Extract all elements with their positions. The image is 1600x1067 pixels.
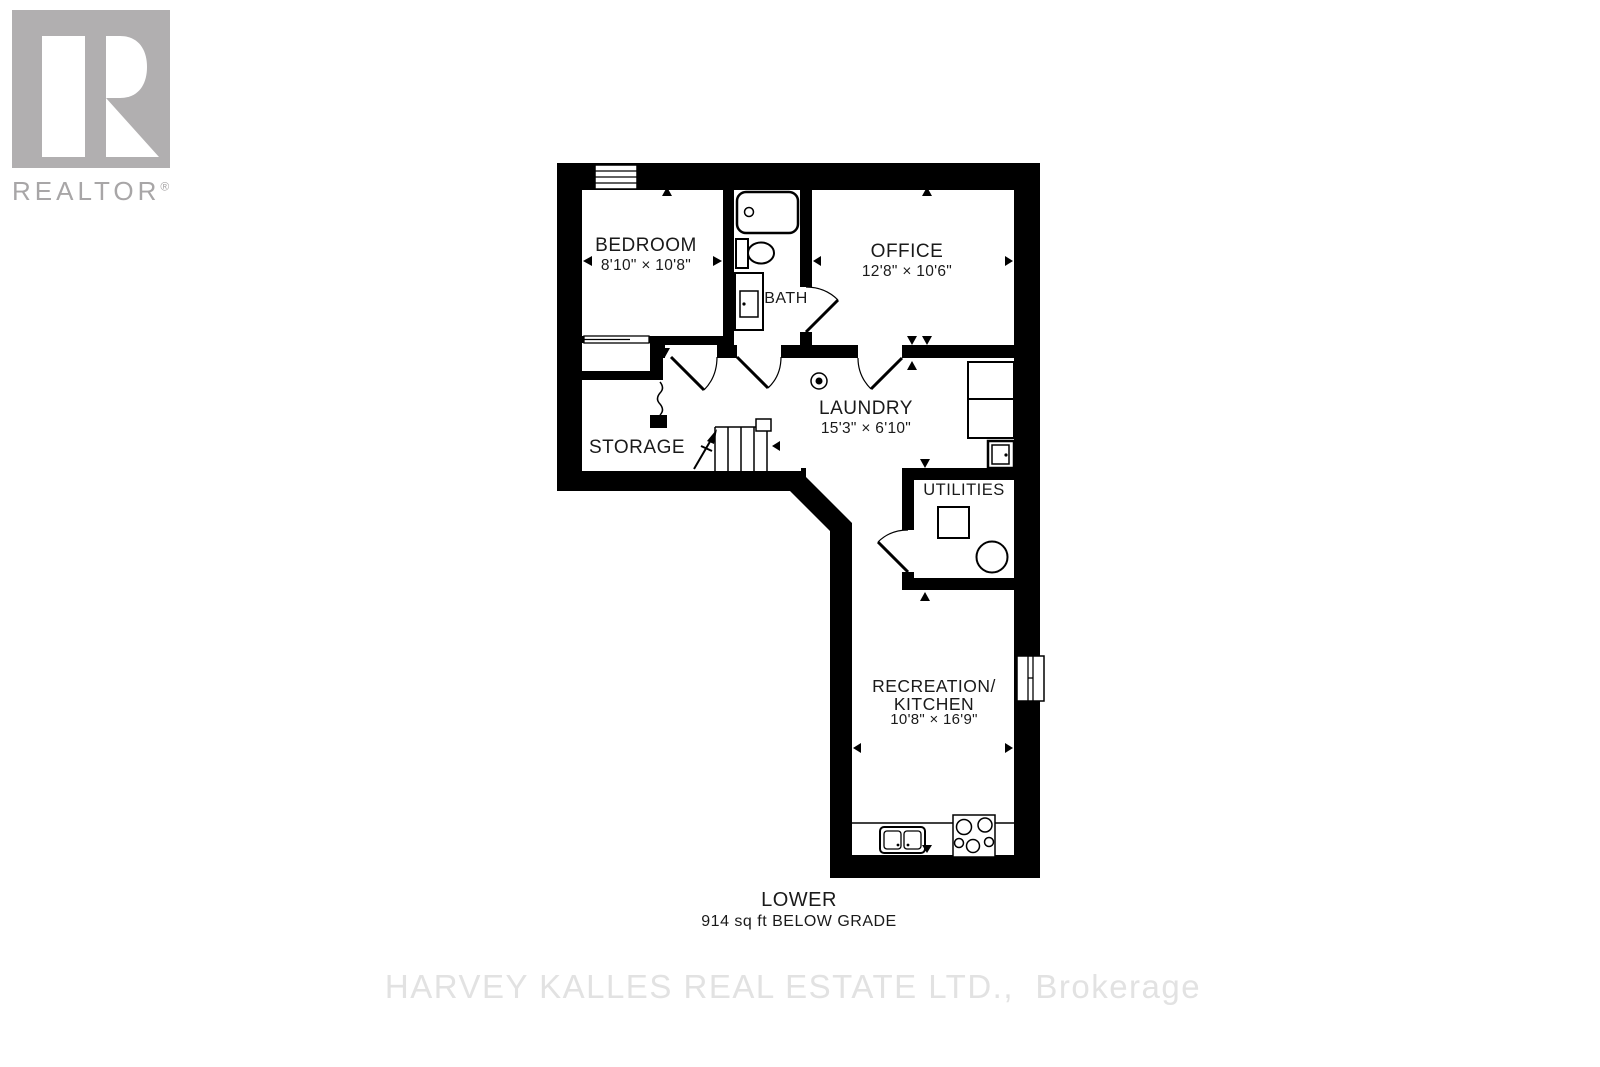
doorway-hall: [665, 345, 717, 358]
brokerage-watermark: HARVEY KALLES REAL ESTATE LTD., Brokerag…: [385, 968, 1201, 1006]
vanity-sink-icon: [735, 273, 763, 330]
level-label: LOWER: [761, 890, 837, 911]
area-label: 914 sq ft BELOW GRADE: [701, 914, 896, 931]
office-label: OFFICE: [871, 242, 944, 262]
laundry-label: LAUNDRY: [819, 399, 913, 419]
bath-label: BATH: [764, 291, 807, 308]
bedroom-dimensions: 8'10" × 10'8": [601, 258, 691, 274]
recreation-dimensions: 10'8" × 16'9": [890, 712, 977, 728]
kitchen-sink-icon: [880, 827, 925, 853]
floor-plan-page: REALTOR®: [0, 0, 1600, 1067]
laundry-dimensions: 15'3" × 6'10": [821, 421, 911, 437]
nook-floor: [806, 468, 902, 590]
washer-dryer-icon: [968, 362, 1014, 438]
bedroom-label: BEDROOM: [595, 236, 697, 256]
office-dimensions: 12'8" × 10'6": [862, 264, 952, 280]
closet-floor: [582, 343, 650, 371]
doorway-office: [858, 345, 902, 358]
wall-stub: [650, 415, 667, 428]
storage-label: STORAGE: [589, 438, 685, 458]
closet-sliding-door-icon: [584, 336, 649, 343]
laundry-sink-icon: [988, 441, 1014, 468]
bathtub-icon: [737, 192, 798, 233]
utilities-label: UTILITIES: [923, 482, 1005, 499]
doorway-bath: [737, 345, 781, 358]
cooktop-icon: [953, 815, 995, 857]
recreation-label-line1: RECREATION/: [872, 677, 996, 695]
